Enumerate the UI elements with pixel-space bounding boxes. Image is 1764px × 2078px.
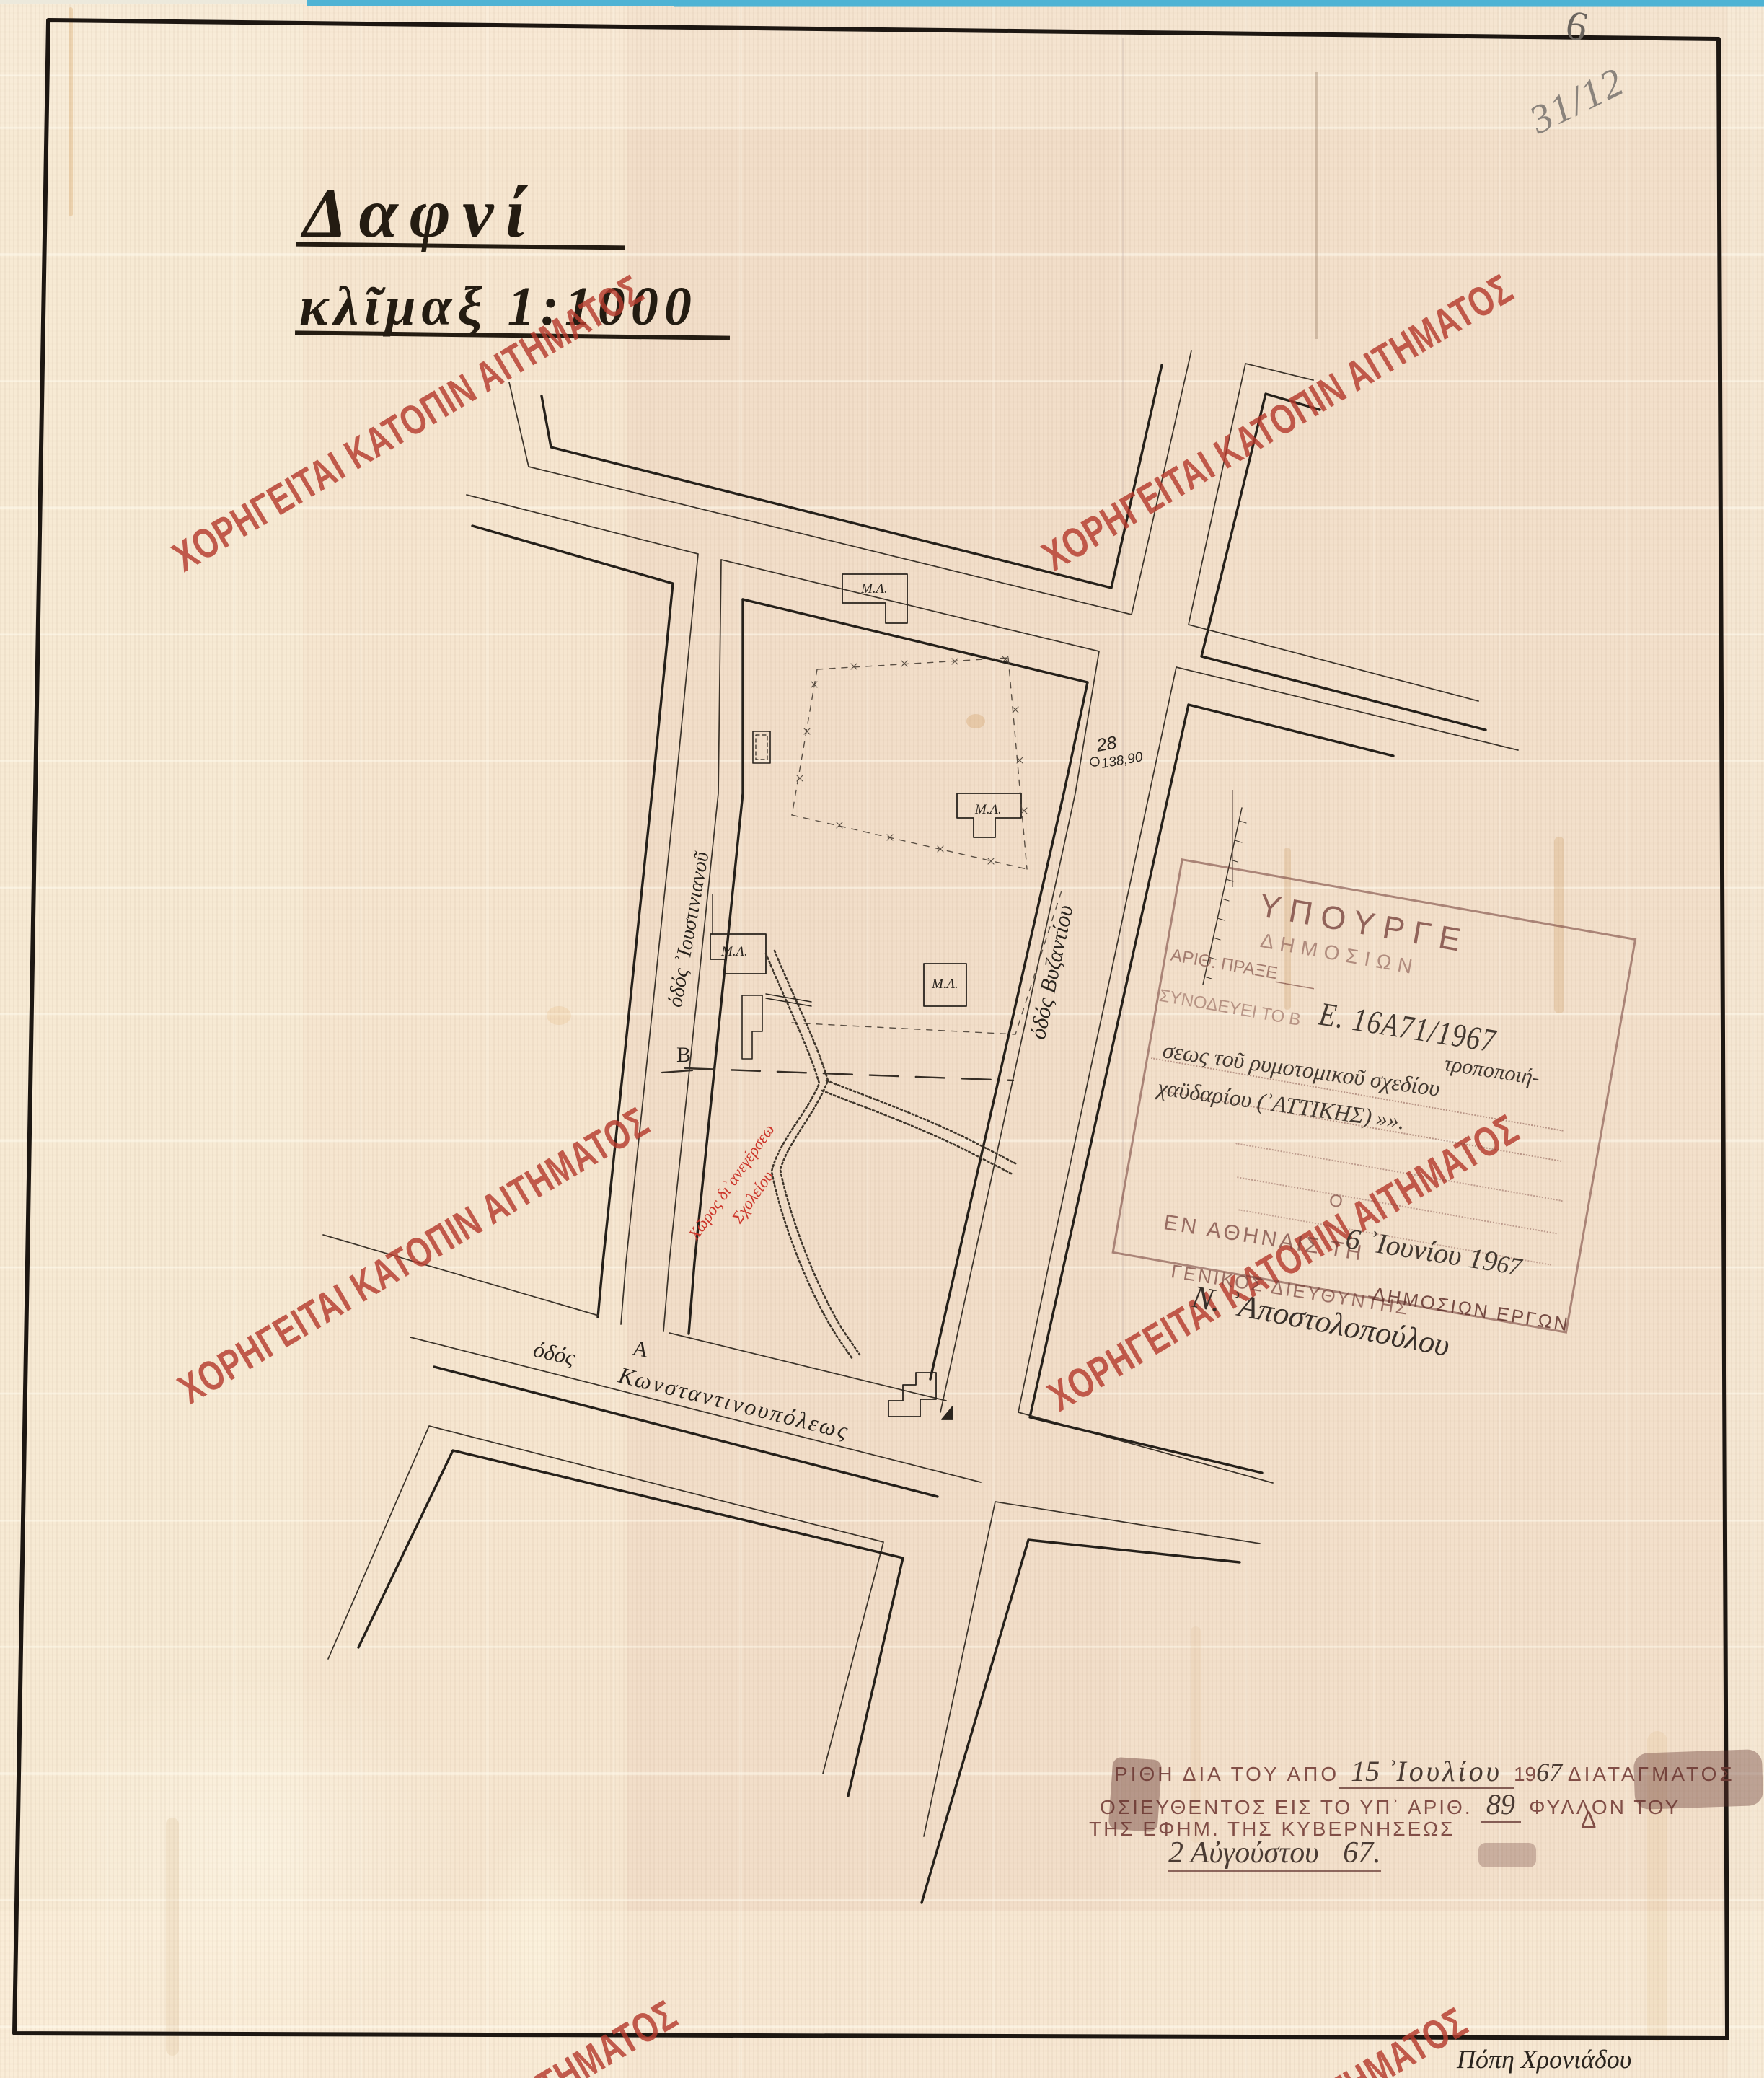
svg-text:Μ.Λ.: Μ.Λ.	[860, 581, 888, 596]
svg-text:Μ.Λ.: Μ.Λ.	[974, 802, 1002, 817]
svg-text:Κωνσταντινουπόλεως: Κωνσταντινουπόλεως	[615, 1362, 852, 1445]
svg-text:Α: Α	[631, 1336, 651, 1362]
svg-text:όδός ʾΙουστινιανοῦ: όδός ʾΙουστινιανοῦ	[663, 850, 714, 1009]
svg-text:28: 28	[1094, 732, 1118, 756]
svg-text:Μ.Λ.: Μ.Λ.	[931, 977, 958, 992]
svg-text:όδός Βυζαντίου: όδός Βυζαντίου	[1025, 903, 1078, 1042]
svg-text:Μ.Λ.: Μ.Λ.	[720, 944, 748, 959]
svg-text:όδός: όδός	[531, 1337, 578, 1370]
